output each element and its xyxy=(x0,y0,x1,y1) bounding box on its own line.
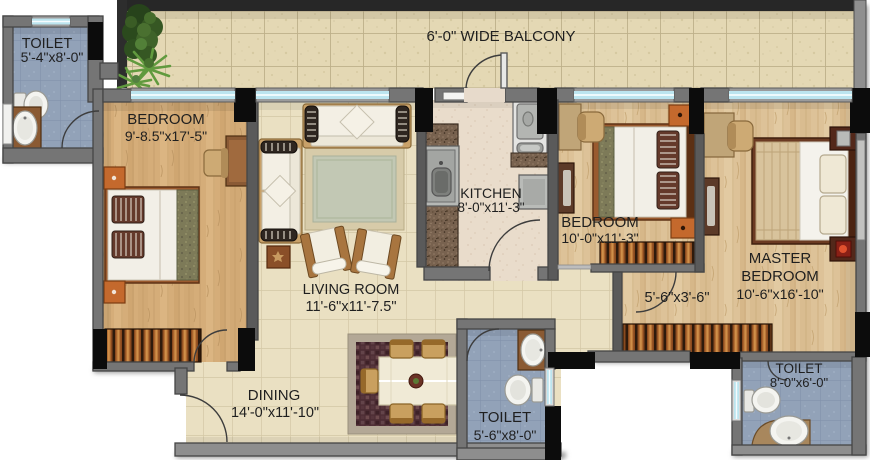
svg-text:TOILET: TOILET xyxy=(775,361,822,376)
svg-text:5'-6"x8'-0": 5'-6"x8'-0" xyxy=(474,427,537,443)
svg-text:LIVING ROOM: LIVING ROOM xyxy=(303,282,400,298)
svg-text:10'-0"x11'-3": 10'-0"x11'-3" xyxy=(561,230,638,246)
svg-text:5'-4"x8'-0": 5'-4"x8'-0" xyxy=(21,49,84,65)
svg-text:DINING: DINING xyxy=(248,387,301,404)
svg-text:5'-6"x3'-6": 5'-6"x3'-6" xyxy=(645,290,710,306)
svg-text:MASTER: MASTER xyxy=(749,250,812,267)
svg-text:9'-8.5"x17'-5": 9'-8.5"x17'-5" xyxy=(125,128,207,144)
svg-text:BEDROOM: BEDROOM xyxy=(127,111,205,128)
svg-text:BEDROOM: BEDROOM xyxy=(741,268,819,285)
svg-text:14'-0"x11'-10": 14'-0"x11'-10" xyxy=(231,405,319,421)
svg-text:10'-6"x16'-10": 10'-6"x16'-10" xyxy=(736,287,823,303)
svg-text:6'-0" WIDE BALCONY: 6'-0" WIDE BALCONY xyxy=(426,28,575,45)
svg-text:KITCHEN: KITCHEN xyxy=(460,185,521,201)
svg-text:BEDROOM: BEDROOM xyxy=(561,214,639,231)
svg-text:8'-0"x11'-3": 8'-0"x11'-3" xyxy=(457,200,524,215)
svg-text:8'-0"x6'-0": 8'-0"x6'-0" xyxy=(770,375,829,390)
svg-text:11'-6"x11'-7.5": 11'-6"x11'-7.5" xyxy=(305,299,396,315)
svg-text:TOILET: TOILET xyxy=(479,409,531,426)
